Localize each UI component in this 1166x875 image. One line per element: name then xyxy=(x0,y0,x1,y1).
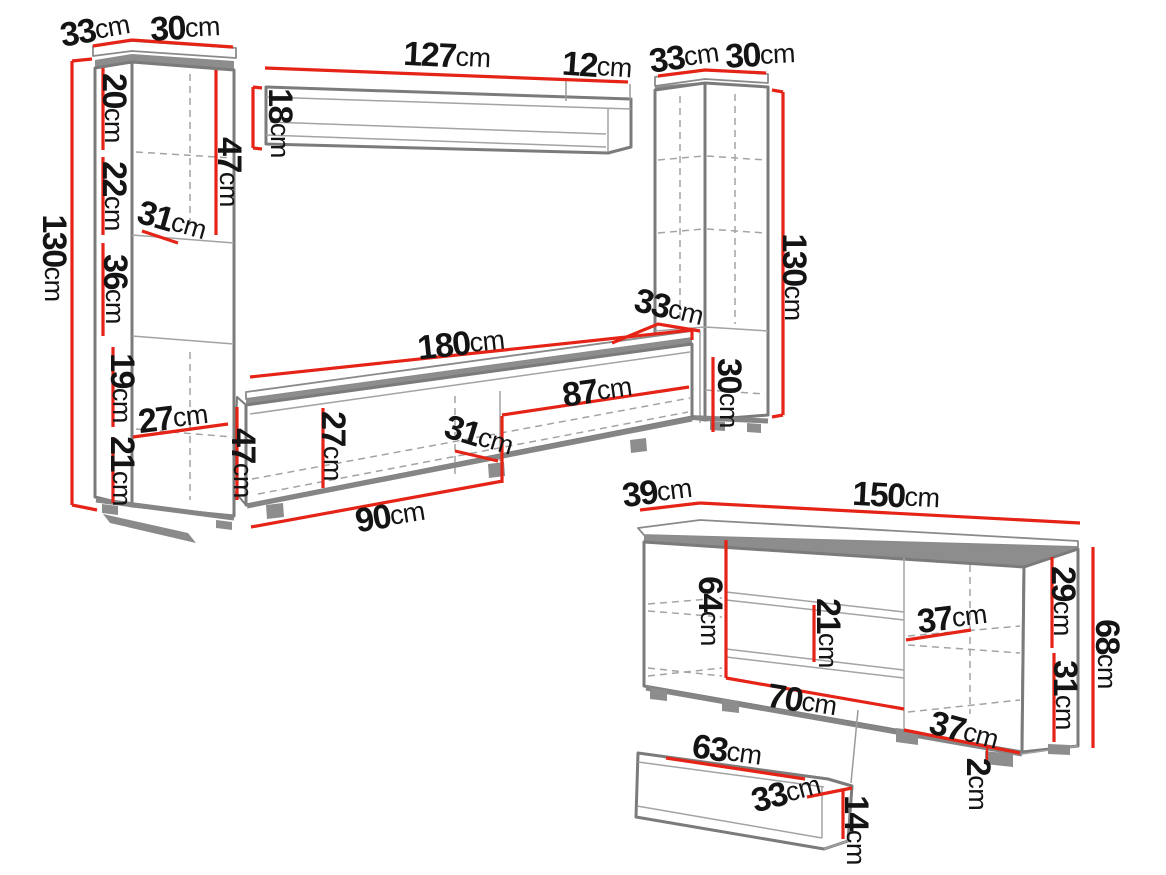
left-cabinet-foot-right xyxy=(216,520,232,530)
dim-label-insert-shelf-height: 14cm xyxy=(837,795,875,865)
dim-label-left-cabinet-height: 130cm xyxy=(35,214,73,301)
tv-stand-foot-left xyxy=(266,503,284,519)
dim-label-sideboard-foot-height: 2cm xyxy=(959,758,997,810)
dim-label-left-cabinet-section-2: 22cm xyxy=(95,161,133,231)
dim-line-wall-shelf-height xyxy=(253,87,262,149)
sideboard-foot-1 xyxy=(650,688,667,701)
dim-label-wall-shelf-end-depth: 12cm xyxy=(561,45,633,88)
dim-label-sideboard-inner-height: 64cm xyxy=(691,576,729,646)
dim-label-tv-stand-left-flap: 90cm xyxy=(353,492,428,540)
tv-stand-foot-right xyxy=(630,438,647,453)
diagram-canvas: 33cm 30cm 130cm 20cm 22cm 36cm 19cm 21cm… xyxy=(0,0,1166,875)
dim-label-tv-stand-front-height: 27cm xyxy=(314,411,352,481)
dim-label-sideboard-right-upper: 29cm xyxy=(1044,566,1082,636)
insert-shelf xyxy=(636,710,858,849)
left-cabinet-front-face xyxy=(132,62,234,516)
sideboard-foot-2 xyxy=(722,699,739,713)
dim-label-right-cabinet-height: 130cm xyxy=(775,233,813,320)
dim-label-sideboard-drawer-height: 21cm xyxy=(809,598,847,668)
dim-label-wall-shelf-length: 127cm xyxy=(402,35,491,78)
wall-shelf-body xyxy=(266,87,631,153)
dim-label-wall-shelf-height: 18cm xyxy=(261,88,299,158)
dim-label-left-cabinet-door-height: 47cm xyxy=(210,137,248,207)
right-cabinet-foot-right xyxy=(747,423,761,433)
dim-label-sideboard-right-lower: 31cm xyxy=(1046,660,1084,730)
wall-shelf xyxy=(266,81,631,153)
dim-label-tv-stand-left-height: 47cm xyxy=(224,428,262,498)
dim-line-left-cabinet-height xyxy=(72,59,97,510)
left-cabinet-floor-shadow xyxy=(103,514,196,543)
dim-label-sideboard-length: 150cm xyxy=(851,475,940,518)
dim-label-left-cabinet-section-1: 20cm xyxy=(95,73,133,143)
dim-label-left-cabinet-top-width: 30cm xyxy=(149,7,221,49)
dim-label-left-cabinet-section-3: 36cm xyxy=(96,254,134,324)
sideboard-foot-5 xyxy=(1048,744,1070,755)
dim-label-right-cabinet-lower-height: 30cm xyxy=(710,358,748,428)
dim-label-sideboard-depth: 39cm xyxy=(620,469,694,515)
dim-label-left-cabinet-section-4: 19cm xyxy=(103,353,141,423)
dim-label-right-cabinet-top-width: 30cm xyxy=(724,34,796,76)
dim-label-left-cabinet-section-5: 21cm xyxy=(103,436,141,506)
dim-label-sideboard-height: 68cm xyxy=(1088,619,1126,689)
